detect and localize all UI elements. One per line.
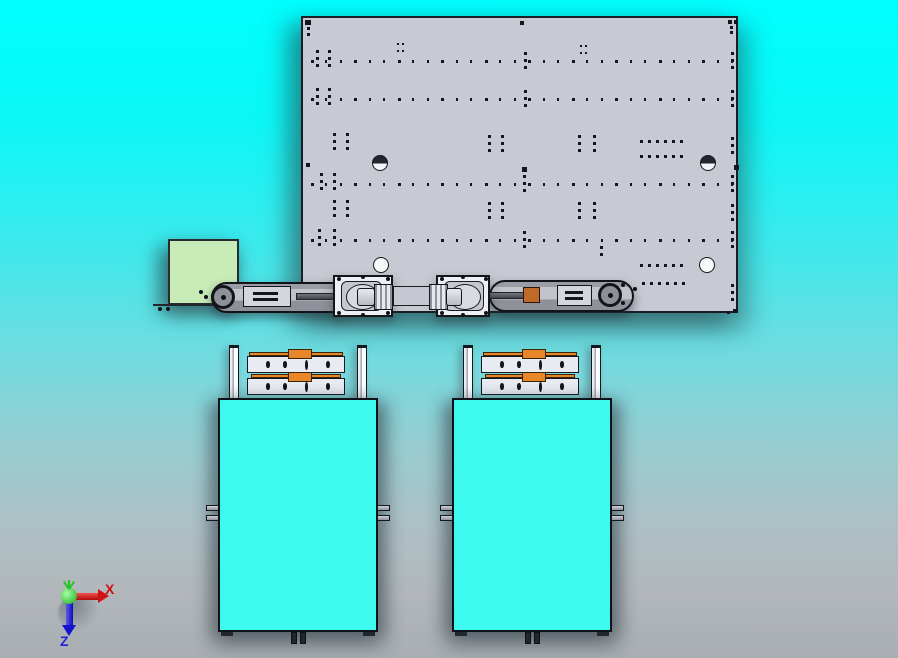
- plate-hole: [731, 52, 734, 55]
- plate-hole: [383, 60, 385, 63]
- plate-hole: [664, 264, 667, 267]
- corner-nub: [597, 632, 609, 636]
- cart-foot: [534, 632, 540, 644]
- plate-hole: [673, 60, 675, 63]
- plate-hole: [369, 60, 371, 63]
- plate-hole: [340, 98, 342, 101]
- plate-hole: [688, 60, 690, 63]
- plate-hole: [311, 98, 314, 101]
- plate-hole: [354, 183, 357, 186]
- plate-hole: [470, 98, 472, 101]
- machine-screw: [633, 287, 637, 291]
- frame-post[interactable]: [591, 345, 601, 401]
- plate-hole: [398, 98, 401, 101]
- plate-hole: [427, 98, 429, 101]
- plate-hole: [501, 202, 504, 205]
- side-tab: [611, 505, 624, 511]
- plate-hole: [659, 183, 662, 186]
- plate-hole: [586, 239, 588, 242]
- plate-hole: [402, 50, 404, 52]
- plate-hole: [499, 183, 501, 186]
- plate-hole: [578, 216, 581, 219]
- plate-hole: [543, 239, 545, 242]
- plate-hole: [630, 183, 632, 186]
- shaft-coupling[interactable]: [374, 284, 393, 310]
- y-axis-origin-icon: [61, 588, 77, 604]
- plate-bore: [699, 257, 715, 273]
- plate-hole: [630, 60, 632, 63]
- plate-hole: [412, 60, 414, 63]
- plate-hole: [340, 60, 342, 63]
- orange-tab: [288, 349, 312, 359]
- plate-hole: [734, 165, 739, 170]
- plate-hole: [328, 64, 331, 67]
- plate-hole: [672, 264, 675, 267]
- plate-hole: [734, 20, 738, 24]
- side-tab: [206, 505, 219, 511]
- plate-hole: [528, 239, 531, 242]
- plate-hole: [731, 238, 734, 241]
- plate-hole: [731, 175, 734, 178]
- plate-hole: [524, 59, 527, 62]
- plate-hole: [441, 239, 444, 242]
- plate-hole: [731, 204, 734, 207]
- plate-hole: [328, 88, 331, 91]
- plate-hole: [354, 60, 357, 63]
- plate-hole: [717, 183, 719, 186]
- machine-screw: [386, 311, 390, 315]
- plate-hole: [640, 140, 643, 143]
- machine-screw: [361, 275, 365, 279]
- machine-screw: [204, 295, 208, 299]
- plate-hole: [369, 239, 371, 242]
- plate-hole: [731, 291, 734, 294]
- plate-hole: [485, 98, 488, 101]
- plate-hole: [731, 137, 734, 140]
- machine-screw: [461, 275, 465, 279]
- plate-hole: [648, 155, 651, 158]
- corner-nub: [455, 632, 467, 636]
- plate-hole: [543, 183, 545, 186]
- plate-hole: [318, 236, 321, 239]
- plate-hole: [731, 90, 734, 93]
- plate-hole: [333, 180, 336, 183]
- plate-hole: [731, 59, 734, 62]
- plate-hole: [659, 239, 662, 242]
- plate-hole: [501, 209, 504, 212]
- plate-hole: [398, 183, 401, 186]
- bar-hole: [517, 361, 521, 368]
- plate-hole: [543, 60, 545, 63]
- orange-tab: [522, 372, 546, 382]
- plate-hole: [501, 135, 504, 138]
- plate-hole: [316, 50, 319, 53]
- plate-hole: [642, 282, 645, 285]
- plate-hole: [730, 31, 733, 34]
- cart-1: [218, 345, 219, 346]
- plate-hole: [456, 60, 458, 63]
- plate-hole: [523, 245, 526, 248]
- plate-hole: [586, 98, 588, 101]
- plate-hole: [523, 175, 526, 178]
- plate-hole: [523, 238, 526, 241]
- plate-hole: [320, 173, 323, 176]
- plate-hole: [572, 183, 575, 186]
- plate-hole: [585, 52, 587, 54]
- plate-hole: [680, 155, 683, 158]
- plate-hole: [601, 239, 603, 242]
- plate-hole: [316, 102, 319, 105]
- plate-hole: [644, 183, 646, 186]
- plate-hole: [731, 66, 734, 69]
- bar-hole: [500, 383, 504, 390]
- plate-hole: [578, 209, 581, 212]
- plate-hole: [398, 239, 401, 242]
- mount-slot: [253, 292, 278, 295]
- cad-viewport[interactable]: X Z: [0, 0, 898, 658]
- plate-hole: [731, 144, 734, 147]
- plate-hole: [648, 140, 651, 143]
- side-tab: [611, 515, 624, 521]
- plate-hole: [499, 60, 501, 63]
- plate-hole: [656, 140, 659, 143]
- plate-hole: [488, 135, 491, 138]
- plate-hole: [316, 95, 319, 98]
- plate-hole: [731, 218, 734, 221]
- plate-hole: [656, 264, 659, 267]
- bar-slot: [305, 360, 308, 370]
- plate-hole: [346, 147, 349, 150]
- frame-post[interactable]: [357, 345, 367, 401]
- plate-hole: [318, 229, 321, 232]
- plate-hole: [731, 211, 734, 214]
- side-tab: [206, 515, 219, 521]
- plate-hole: [470, 183, 472, 186]
- plate-hole: [501, 216, 504, 219]
- plate-hole: [673, 183, 675, 186]
- plate-hole: [586, 60, 588, 63]
- plate-hole: [488, 209, 491, 212]
- plate-hole: [456, 239, 458, 242]
- plate-hole: [333, 173, 336, 176]
- bar-slot: [305, 382, 308, 392]
- plate-hole: [520, 21, 524, 25]
- plate-hole: [572, 239, 575, 242]
- mount-plate: [243, 286, 291, 307]
- bar-hole: [283, 383, 287, 390]
- mount-plate: [557, 285, 592, 306]
- pulley-axle: [608, 293, 613, 298]
- plate-hole: [640, 155, 643, 158]
- plate-hole: [664, 140, 667, 143]
- plate-hole: [485, 183, 488, 186]
- plate-hole: [557, 98, 559, 101]
- plate-hole: [673, 98, 675, 101]
- plate-hole: [402, 43, 404, 45]
- plate-hole: [333, 236, 336, 239]
- plate-hole: [578, 142, 581, 145]
- plate-hole: [320, 187, 323, 190]
- machine-screw: [337, 311, 341, 315]
- machine-screw: [440, 311, 444, 315]
- bar-slot: [539, 382, 542, 392]
- frame-post[interactable]: [463, 345, 473, 401]
- plate-hole: [543, 98, 545, 101]
- plate-hole: [593, 149, 596, 152]
- plate-hole: [346, 207, 349, 210]
- plate-hole: [456, 183, 458, 186]
- plate-hole: [328, 95, 331, 98]
- plate-hole: [412, 239, 414, 242]
- plate-hole: [501, 149, 504, 152]
- plate-hole: [717, 239, 719, 242]
- plate-hole: [528, 183, 531, 186]
- plate-hole: [325, 239, 327, 242]
- plate-hole: [578, 149, 581, 152]
- plate-hole: [524, 52, 527, 55]
- plate-hole: [383, 98, 385, 101]
- plate-hole: [615, 98, 618, 101]
- side-tab: [377, 505, 390, 511]
- plate-hole: [733, 309, 737, 313]
- plate-hole: [572, 98, 575, 101]
- plate-hole: [717, 98, 719, 101]
- plate-hole: [412, 183, 414, 186]
- plate-hole: [514, 183, 516, 186]
- plate-hole: [383, 183, 385, 186]
- plate-hole: [316, 88, 319, 91]
- mount-slot: [565, 297, 583, 300]
- plate-hole: [702, 60, 705, 63]
- plate-hole: [501, 142, 504, 145]
- plate-hole: [672, 140, 675, 143]
- plate-hole: [656, 155, 659, 158]
- plate-hole: [593, 216, 596, 219]
- coupling-spacer: [393, 286, 431, 306]
- plate-hole: [523, 182, 526, 185]
- plate-hole: [731, 284, 734, 287]
- corner-nub: [221, 632, 233, 636]
- plate-hole: [488, 216, 491, 219]
- plate-hole: [600, 246, 603, 249]
- bar-hole: [517, 383, 521, 390]
- bar-hole: [560, 361, 564, 368]
- bar-hole: [266, 383, 270, 390]
- plate-hole: [528, 60, 531, 63]
- plate-hole: [650, 282, 653, 285]
- plate-hole: [346, 133, 349, 136]
- machine-screw: [461, 313, 465, 317]
- plate-hole: [523, 189, 526, 192]
- plate-hole: [328, 50, 331, 53]
- plate-hole: [688, 98, 690, 101]
- plate-hole: [514, 239, 516, 242]
- plate-hole: [524, 66, 527, 69]
- plate-hole: [593, 202, 596, 205]
- plate-hole: [470, 239, 472, 242]
- plate-hole: [659, 60, 662, 63]
- plate-hole: [727, 311, 730, 314]
- mount-slot: [565, 291, 583, 294]
- cart-2: [452, 345, 453, 346]
- plate-hole: [311, 239, 314, 242]
- plate-hole: [333, 214, 336, 217]
- plate-hole: [557, 239, 559, 242]
- plate-hole: [311, 183, 314, 186]
- plate-hole: [397, 50, 399, 52]
- plate-hole: [682, 282, 685, 285]
- plate-hole: [340, 239, 342, 242]
- plate-hole: [333, 140, 336, 143]
- plate-hole: [311, 60, 314, 63]
- plate-hole: [499, 98, 501, 101]
- plate-hole: [731, 97, 734, 100]
- plate-hole: [427, 183, 429, 186]
- shaft-collar: [446, 288, 462, 306]
- plate-hole: [514, 60, 516, 63]
- side-tab: [440, 515, 453, 521]
- plate-hole: [593, 209, 596, 212]
- plate-hole: [666, 282, 669, 285]
- bar-hole: [326, 383, 330, 390]
- plate-hole: [427, 60, 429, 63]
- orange-tab: [522, 349, 546, 359]
- plate-hole: [680, 140, 683, 143]
- machine-screw: [361, 313, 365, 317]
- machine-screw: [440, 277, 444, 281]
- plate-hole: [488, 202, 491, 205]
- machine-screw: [199, 290, 203, 294]
- plate-hole: [528, 98, 531, 101]
- plate-hole: [731, 298, 734, 301]
- plate-hole: [615, 60, 618, 63]
- plate-hole: [427, 239, 429, 242]
- plate-hole: [325, 183, 327, 186]
- plate-hole: [523, 231, 526, 234]
- plate-hole: [524, 90, 527, 93]
- plate-hole: [673, 239, 675, 242]
- screw-head: [372, 155, 388, 171]
- plate-hole: [316, 57, 319, 60]
- plate-hole: [369, 183, 371, 186]
- plate-hole: [658, 282, 661, 285]
- shaft-collar: [357, 288, 375, 306]
- plate-hole: [441, 183, 444, 186]
- plate-hole: [333, 229, 336, 232]
- machine-screw: [621, 301, 625, 305]
- plate-hole: [730, 26, 733, 29]
- side-tab: [440, 505, 453, 511]
- plate-hole: [485, 239, 488, 242]
- plate-hole: [601, 98, 603, 101]
- plate-hole: [441, 98, 444, 101]
- cart-foot: [300, 632, 306, 644]
- plate-hole: [485, 60, 488, 63]
- plate-hole: [731, 182, 734, 185]
- plate-hole: [731, 245, 734, 248]
- plate-hole: [340, 183, 342, 186]
- plate-hole: [346, 140, 349, 143]
- plate-hole: [585, 45, 587, 47]
- bar-slot: [539, 360, 542, 370]
- plate-hole: [333, 243, 336, 246]
- plate-hole: [557, 60, 559, 63]
- x-axis-label: X: [105, 582, 114, 596]
- frame-post[interactable]: [229, 345, 239, 401]
- screw-head: [700, 155, 716, 171]
- z-axis-label: Z: [60, 634, 69, 648]
- plate-hole: [702, 183, 705, 186]
- machine-screw: [386, 277, 390, 281]
- pulley-axle: [221, 295, 226, 300]
- plate-hole: [333, 187, 336, 190]
- plate-hole: [672, 155, 675, 158]
- plate-hole: [580, 45, 582, 47]
- plate-hole: [333, 147, 336, 150]
- plate-hole: [325, 98, 327, 101]
- plate-hole: [664, 155, 667, 158]
- plate-hole: [731, 151, 734, 154]
- plate-hole: [578, 135, 581, 138]
- orange-bushing: [523, 287, 540, 303]
- plate-hole: [354, 239, 357, 242]
- plate-hole: [470, 60, 472, 63]
- machine-screw: [166, 307, 170, 311]
- machine-screw: [484, 311, 488, 315]
- plate-hole: [524, 97, 527, 100]
- plate-hole: [600, 253, 603, 256]
- cart-body[interactable]: [218, 398, 378, 632]
- plate-hole: [412, 98, 414, 101]
- plate-hole: [318, 243, 321, 246]
- base-plate[interactable]: [301, 16, 738, 313]
- plate-hole: [305, 20, 311, 25]
- plate-hole: [398, 60, 401, 63]
- plate-hole: [702, 98, 705, 101]
- plate-hole: [346, 200, 349, 203]
- bar-hole: [500, 361, 504, 368]
- plate-hole: [456, 98, 458, 101]
- bar-hole: [283, 361, 287, 368]
- plate-hole: [578, 202, 581, 205]
- mount-slot: [253, 298, 278, 301]
- plate-hole: [640, 264, 643, 267]
- plate-hole: [316, 64, 319, 67]
- machine-screw: [337, 277, 341, 281]
- plate-hole: [354, 98, 357, 101]
- plate-hole: [488, 149, 491, 152]
- plate-hole: [499, 239, 501, 242]
- plate-hole: [325, 60, 327, 63]
- plate-hole: [333, 133, 336, 136]
- bar-hole: [326, 361, 330, 368]
- plate-hole: [688, 239, 690, 242]
- plate-hole: [674, 282, 677, 285]
- plate-hole: [306, 163, 310, 167]
- plate-hole: [644, 60, 646, 63]
- plate-hole: [557, 183, 559, 186]
- plate-hole: [572, 60, 575, 63]
- cart-body[interactable]: [452, 398, 612, 632]
- plate-hole: [702, 239, 705, 242]
- plate-hole: [383, 239, 385, 242]
- cart-foot: [525, 632, 531, 644]
- plate-hole: [630, 98, 632, 101]
- plate-hole: [307, 33, 310, 36]
- cart-foot: [291, 632, 297, 644]
- plate-hole: [346, 214, 349, 217]
- plate-hole: [644, 98, 646, 101]
